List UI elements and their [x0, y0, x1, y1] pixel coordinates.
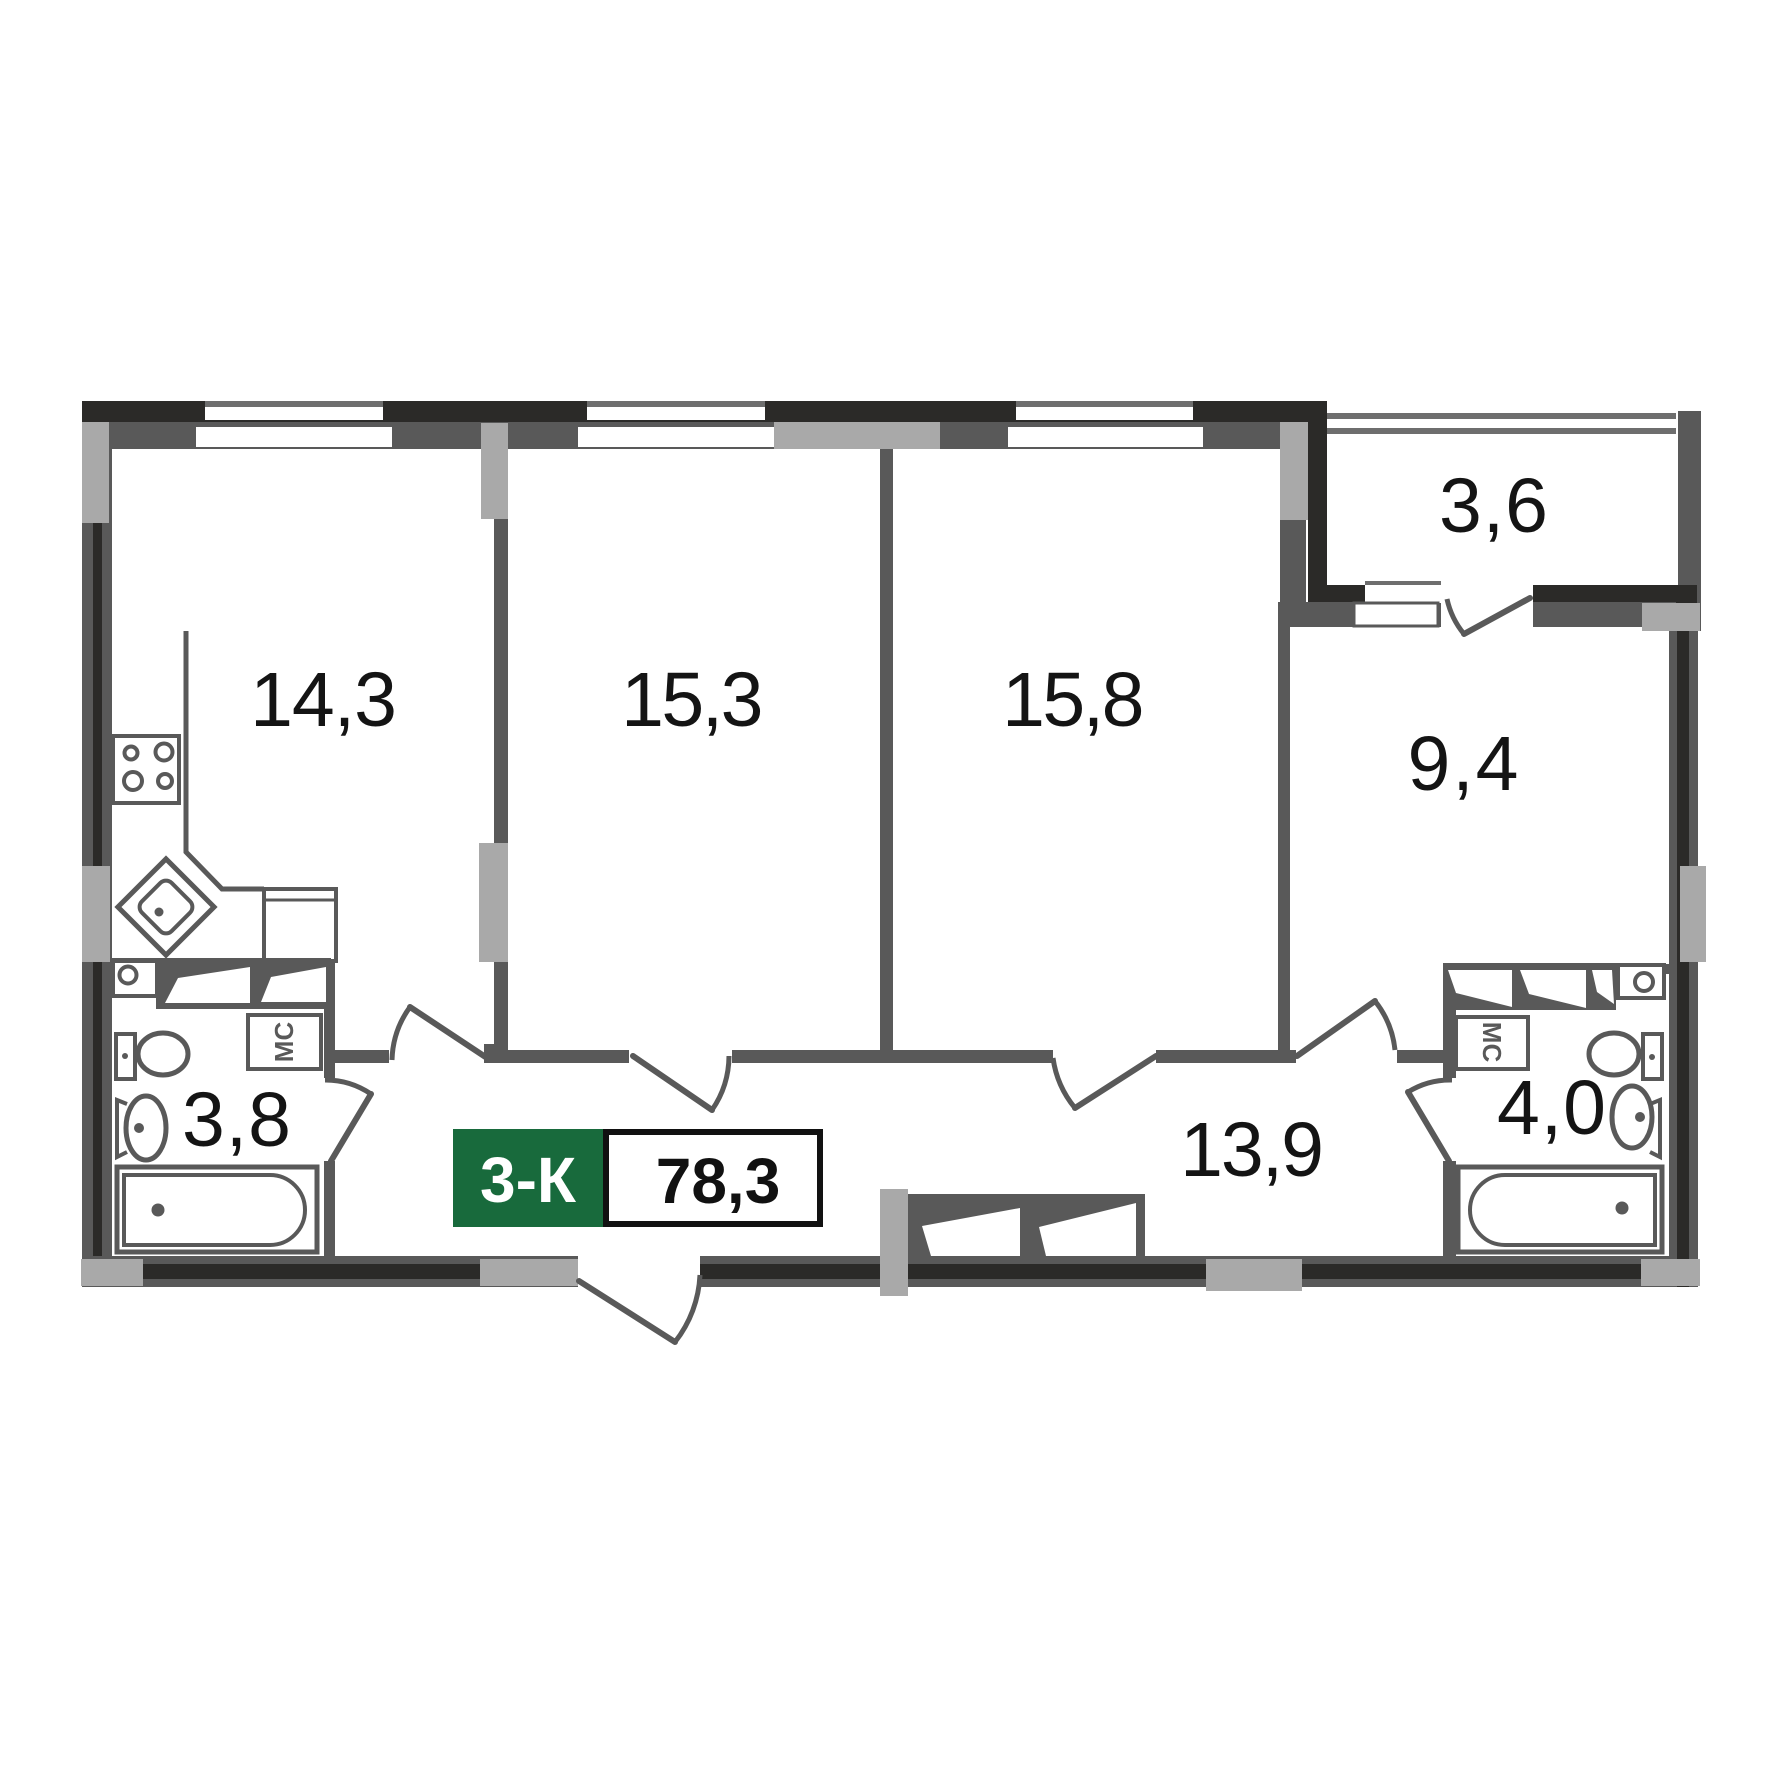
svg-text:78,3: 78,3	[656, 1145, 781, 1217]
svg-text:3-К: 3-К	[480, 1144, 577, 1216]
svg-text:3,8: 3,8	[182, 1077, 292, 1163]
svg-text:13,9: 13,9	[1180, 1107, 1322, 1193]
svg-text:3,6: 3,6	[1439, 463, 1549, 549]
svg-text:МС: МС	[269, 1022, 299, 1063]
svg-text:15,3: 15,3	[621, 657, 761, 743]
svg-text:9,4: 9,4	[1407, 721, 1520, 807]
svg-text:4,0: 4,0	[1497, 1065, 1607, 1151]
svg-text:15,8: 15,8	[1002, 657, 1142, 743]
svg-text:МС: МС	[1477, 1022, 1507, 1063]
svg-text:14,3: 14,3	[250, 657, 396, 743]
